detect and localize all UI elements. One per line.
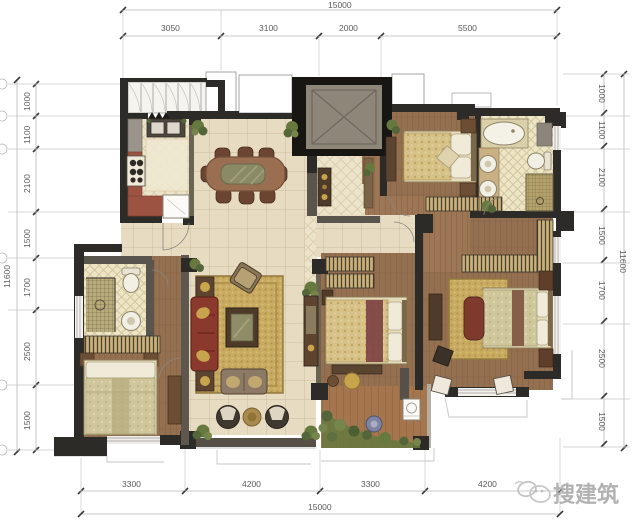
svg-text:1500: 1500 xyxy=(22,229,32,248)
svg-text:4200: 4200 xyxy=(478,479,497,489)
svg-text:2100: 2100 xyxy=(22,174,32,193)
svg-text:2500: 2500 xyxy=(22,342,32,361)
svg-text:1000: 1000 xyxy=(22,92,32,111)
svg-text:3050: 3050 xyxy=(161,23,180,33)
svg-text:1500: 1500 xyxy=(597,412,607,431)
svg-text:1000: 1000 xyxy=(597,84,607,103)
svg-text:11600: 11600 xyxy=(618,250,628,273)
svg-text:1500: 1500 xyxy=(22,411,32,430)
svg-text:3100: 3100 xyxy=(259,23,278,33)
svg-text:1700: 1700 xyxy=(22,278,32,297)
svg-text:1100: 1100 xyxy=(22,125,32,144)
svg-text:2100: 2100 xyxy=(597,168,607,187)
svg-text:15000: 15000 xyxy=(308,502,332,512)
svg-text:15000: 15000 xyxy=(328,0,352,10)
svg-text:1700: 1700 xyxy=(597,281,607,300)
svg-text:搜建筑: 搜建筑 xyxy=(553,482,619,507)
svg-text:1100: 1100 xyxy=(597,121,607,140)
svg-text:1500: 1500 xyxy=(597,226,607,245)
svg-text:3300: 3300 xyxy=(122,479,141,489)
svg-text:11600: 11600 xyxy=(2,265,12,288)
svg-text:2000: 2000 xyxy=(339,23,358,33)
svg-text:3300: 3300 xyxy=(361,479,380,489)
svg-text:2500: 2500 xyxy=(597,349,607,368)
svg-text:4200: 4200 xyxy=(242,479,261,489)
svg-text:5500: 5500 xyxy=(458,23,477,33)
